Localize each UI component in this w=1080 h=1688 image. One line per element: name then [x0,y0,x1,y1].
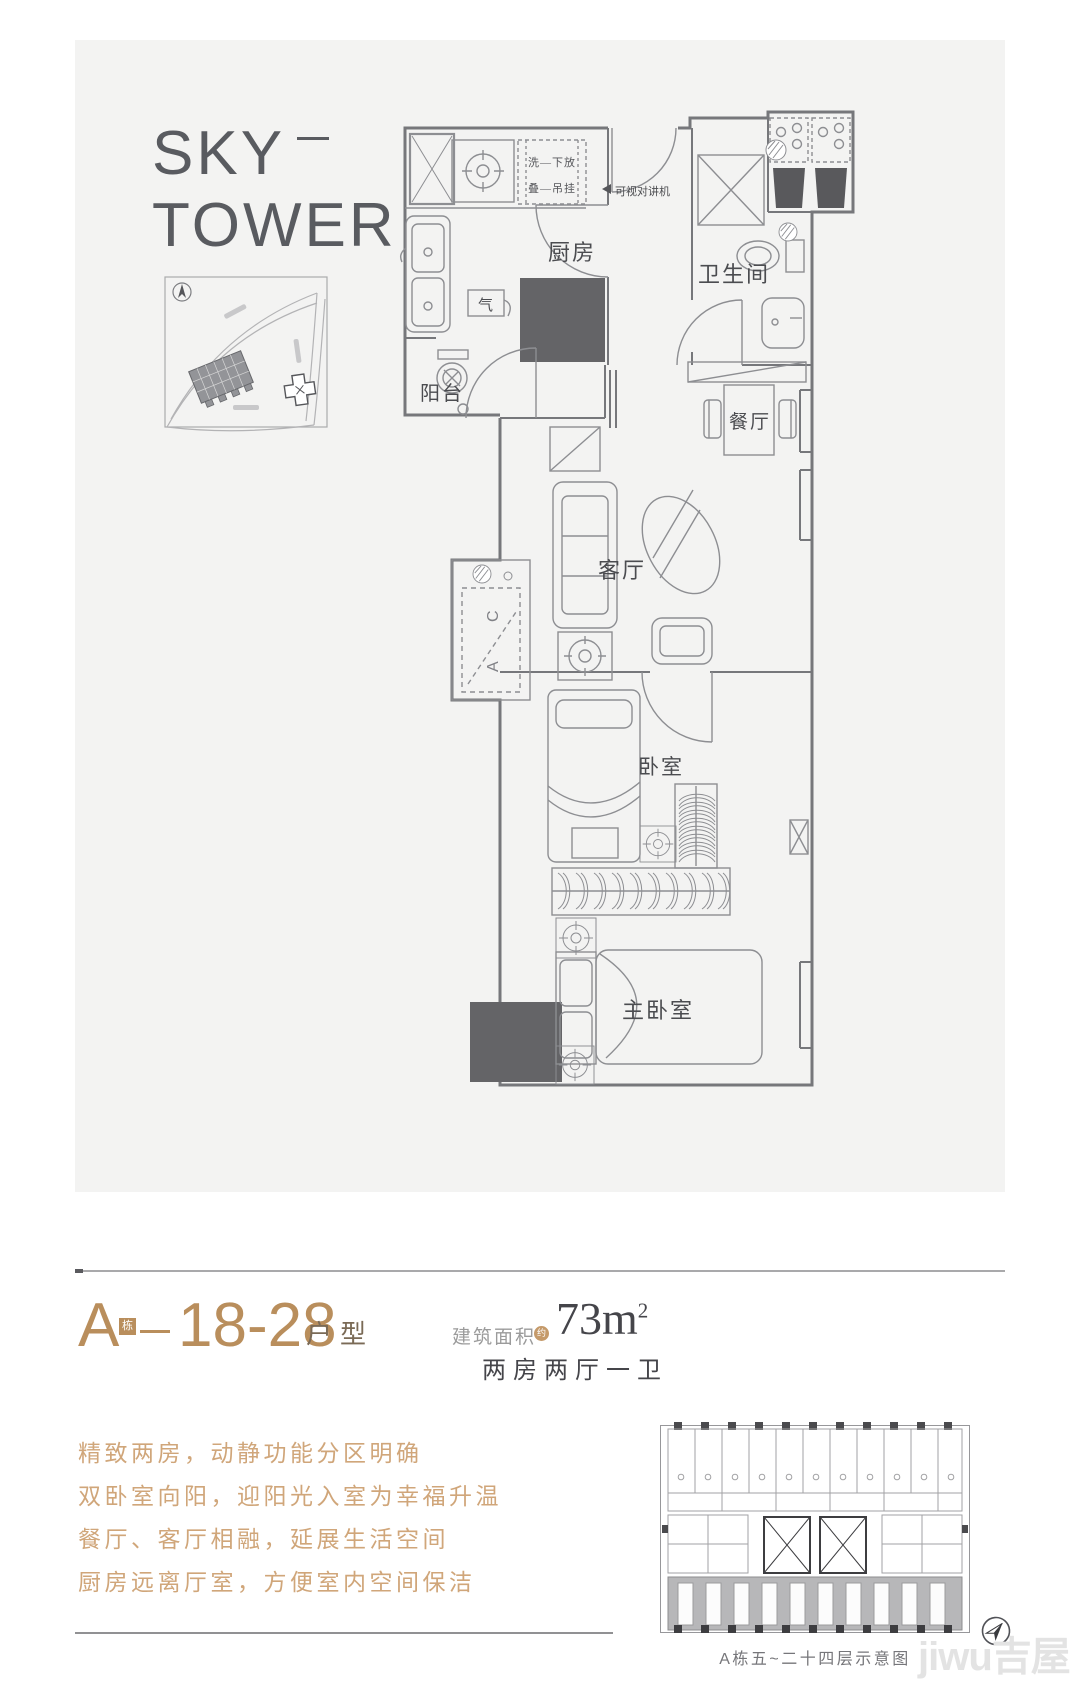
unit-block-badge: 栋 [119,1318,136,1335]
washer-note-bottom: 叠—吊挂 [528,181,576,195]
area-value: 73m2 [556,1296,648,1342]
unit-type-suffix: 户型 [306,1314,374,1351]
schematic-caption: A栋五~二十四层示意图 [700,1645,930,1669]
description-block: 精致两房，动静功能分区明确 双卧室向阳，迎阳光入室为幸福升温 餐厅、客厅相融，延… [78,1432,502,1604]
intercom-label: 可视对讲机 [615,184,670,198]
ac-small-circle [504,572,512,580]
area-label: 建筑面积 [452,1322,536,1349]
room-label-master: 主卧室 [622,998,694,1023]
watermark: jiwu吉屋 [918,1624,1070,1682]
room-label-living: 客厅 [598,558,646,583]
divider-bottom [75,1632,613,1634]
site-map-building-main [189,351,256,409]
wardrobe-hangers [679,794,715,862]
shaft-block-top [520,278,605,362]
layout-summary: 两房两厅一卫 [482,1350,668,1385]
brand-line2: TOWER [152,190,397,262]
floorplan-page: { "brand": {"line1": "SKY", "line2": "TO… [0,0,1080,1688]
drain-icon-2 [779,223,797,241]
area-approx-badge: 约 [534,1326,549,1341]
ac-platform [452,560,530,700]
shaft-block-bottom [470,1002,562,1082]
dining-furniture [688,362,806,455]
living-furniture [550,427,735,680]
gas-label: 气 [478,297,493,314]
schematic-middle [662,1515,968,1573]
intercom-icon [602,184,611,194]
room-label-dining: 餐厅 [729,411,771,433]
area-number: 73 [556,1293,602,1344]
doors [466,128,742,742]
floor-plate-schematic [661,1422,970,1633]
brand-logo: SKY TOWER [152,118,397,262]
description-line-4: 厨房远离厅室，方便室内空间保洁 [78,1561,502,1604]
ac-letter-a: A [485,661,502,672]
room-label-kitchen: 厨房 [548,240,596,265]
area-exponent: 2 [638,1299,649,1323]
title-dash-decoration [140,1330,170,1333]
divider-top-tick [75,1269,83,1273]
room-label-balcony: 阳台 [420,382,464,405]
divider-top [75,1270,1005,1272]
ac-drain-icon [473,565,491,583]
description-line-3: 餐厅、客厅相融，延展生活空间 [78,1518,502,1561]
site-map-compass-icon [173,283,191,301]
schematic-top-units [668,1429,962,1511]
washer-note-top: 洗—下放 [528,155,576,169]
room-label-bedroom: 卧室 [638,755,684,779]
floor-plan: 洗—下放 叠—吊挂 气 厨房 可视对讲机 阳台 [401,112,853,1085]
unit-block-letter: A [78,1295,119,1357]
column-target-bedroom [640,826,676,862]
brand-line1: SKY [152,118,397,190]
description-line-2: 双卧室向阳，迎阳光入室为幸福升温 [78,1475,502,1518]
description-line-1: 精致两房，动静功能分区明确 [78,1432,502,1475]
room-label-bathroom: 卫生间 [698,262,770,287]
area-unit: m [602,1293,638,1344]
site-map-building-cross [283,373,317,407]
drain-icon-1 [766,140,786,160]
logo-dash-decoration [297,137,329,140]
site-map [165,277,327,431]
bedroom-furniture [548,690,808,868]
ac-letter-c: C [485,610,502,622]
